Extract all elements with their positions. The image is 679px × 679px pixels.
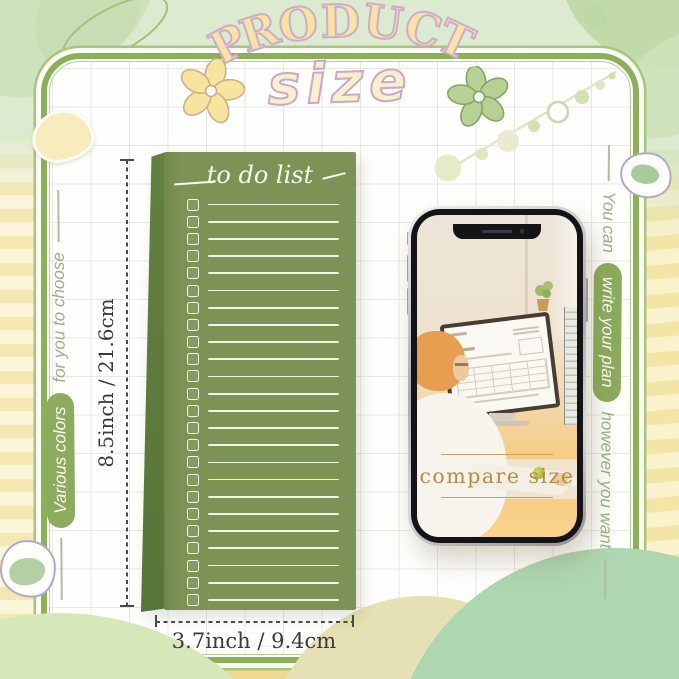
right-banner: You can write your plan however you want bbox=[588, 172, 625, 572]
todo-row bbox=[164, 402, 356, 419]
camera-icon bbox=[520, 229, 525, 234]
ruled-line bbox=[208, 462, 339, 464]
todo-row bbox=[164, 419, 356, 436]
speaker-icon bbox=[482, 230, 512, 234]
ruled-line bbox=[208, 496, 339, 498]
todo-row bbox=[164, 591, 356, 608]
todo-row bbox=[164, 351, 356, 368]
checkbox-icon bbox=[187, 405, 199, 417]
ruled-line bbox=[208, 410, 339, 412]
checkbox-icon bbox=[187, 216, 199, 228]
ruled-line bbox=[208, 530, 339, 532]
ruled-line bbox=[208, 358, 339, 360]
ruled-line bbox=[208, 547, 339, 549]
ruled-line bbox=[208, 307, 339, 309]
ruled-line bbox=[208, 582, 339, 584]
ruled-line bbox=[208, 565, 339, 567]
ruled-line bbox=[208, 376, 339, 378]
ruled-line bbox=[208, 324, 339, 326]
measure-cap bbox=[352, 615, 354, 627]
checkbox-icon bbox=[187, 388, 199, 400]
right-banner-text-top: You can bbox=[598, 191, 619, 253]
leaf-decoration bbox=[584, 6, 607, 29]
title-letter: O bbox=[276, 0, 322, 50]
todo-row bbox=[164, 299, 356, 316]
person-face bbox=[453, 355, 469, 381]
banner-line bbox=[57, 190, 59, 242]
second-monitor bbox=[564, 307, 577, 425]
height-dimension-label: 8.5inch / 21.6cm bbox=[94, 283, 118, 483]
smartphone: compare size bbox=[408, 206, 586, 546]
ruled-line bbox=[208, 221, 339, 223]
checkbox-icon bbox=[187, 474, 199, 486]
ruled-line bbox=[208, 513, 339, 515]
checkbox-icon bbox=[187, 594, 199, 606]
ruled-line bbox=[208, 290, 339, 292]
left-banner-pill: Various colors bbox=[46, 393, 75, 528]
ruled-line bbox=[208, 238, 339, 240]
todo-row bbox=[164, 230, 356, 247]
checkbox-icon bbox=[187, 250, 199, 262]
checkbox-icon bbox=[187, 233, 199, 245]
ruled-line bbox=[208, 204, 339, 206]
caption-rule bbox=[441, 497, 553, 498]
height-measure-line bbox=[126, 160, 128, 606]
checkbox-icon bbox=[187, 319, 199, 331]
ruled-line bbox=[208, 341, 339, 343]
todo-list-notepad: to do list bbox=[141, 152, 357, 614]
todo-row bbox=[164, 248, 356, 265]
checkbox-icon bbox=[187, 422, 199, 434]
compare-size-caption: compare size bbox=[417, 464, 577, 488]
checkbox-icon bbox=[187, 542, 199, 554]
notepad-side-edge bbox=[141, 152, 166, 612]
todo-row bbox=[164, 557, 356, 574]
banner-line bbox=[608, 145, 610, 181]
title-size: size bbox=[249, 53, 431, 114]
checkbox-icon bbox=[187, 525, 199, 537]
todo-row bbox=[164, 505, 356, 522]
checkbox-icon bbox=[187, 336, 199, 348]
checkbox-icon bbox=[187, 577, 199, 589]
todo-row bbox=[164, 574, 356, 591]
ruled-line bbox=[208, 393, 339, 395]
todo-row bbox=[164, 540, 356, 557]
product-size-infographic: PRODUCT size to do list bbox=[0, 0, 679, 679]
ruled-line bbox=[208, 599, 339, 601]
ruled-line bbox=[208, 255, 339, 257]
todo-row bbox=[164, 471, 356, 488]
notepad-title: to do list bbox=[164, 161, 356, 189]
todo-row bbox=[164, 334, 356, 351]
title-letter: U bbox=[361, 0, 405, 47]
caption-rule bbox=[441, 454, 553, 455]
title-letter: D bbox=[321, 0, 361, 44]
width-measure-line bbox=[156, 621, 353, 623]
ruled-line bbox=[208, 444, 339, 446]
flower-icon-green bbox=[443, 61, 515, 133]
plant-pot bbox=[536, 299, 550, 311]
checkbox-icon bbox=[187, 491, 199, 503]
measure-cap bbox=[120, 159, 134, 161]
todo-row bbox=[164, 368, 356, 385]
measure-cap bbox=[120, 605, 134, 607]
notepad-front: to do list bbox=[164, 152, 356, 610]
checkbox-icon bbox=[187, 267, 199, 279]
caption-block: compare size bbox=[417, 445, 577, 507]
phone-screen: compare size bbox=[417, 215, 577, 537]
title-product: PRODUCT bbox=[208, 4, 472, 49]
width-dimension-label: 3.7inch / 9.4cm bbox=[134, 629, 374, 653]
checkbox-icon bbox=[187, 302, 199, 314]
todo-row bbox=[164, 265, 356, 282]
todo-row bbox=[164, 282, 356, 299]
plant-icon bbox=[533, 281, 559, 299]
todo-rows bbox=[164, 196, 356, 609]
todo-row bbox=[164, 454, 356, 471]
right-banner-pill: write your plan bbox=[593, 263, 622, 402]
checkbox-icon bbox=[187, 285, 199, 297]
phone-notch bbox=[453, 224, 541, 239]
measure-cap bbox=[155, 615, 157, 627]
todo-row bbox=[164, 385, 356, 402]
todo-row bbox=[164, 488, 356, 505]
ruled-line bbox=[208, 272, 339, 274]
checkbox-icon bbox=[187, 439, 199, 451]
left-banner: Various colors for you to choose bbox=[41, 185, 79, 605]
ruled-line bbox=[208, 479, 339, 481]
checkbox-icon bbox=[187, 560, 199, 572]
todo-row bbox=[164, 316, 356, 333]
person-glasses bbox=[455, 363, 468, 366]
todo-row bbox=[164, 523, 356, 540]
checkbox-icon bbox=[187, 370, 199, 382]
checkbox-icon bbox=[187, 456, 199, 468]
ruled-line bbox=[208, 427, 339, 429]
right-banner-text-bottom: however you want bbox=[595, 411, 616, 548]
checkbox-icon bbox=[187, 508, 199, 520]
left-banner-text: for you to choose bbox=[49, 252, 70, 383]
checkbox-icon bbox=[187, 199, 199, 211]
banner-line bbox=[60, 538, 62, 600]
todo-row bbox=[164, 437, 356, 454]
checkbox-icon bbox=[187, 353, 199, 365]
todo-row bbox=[164, 196, 356, 213]
todo-row bbox=[164, 213, 356, 230]
